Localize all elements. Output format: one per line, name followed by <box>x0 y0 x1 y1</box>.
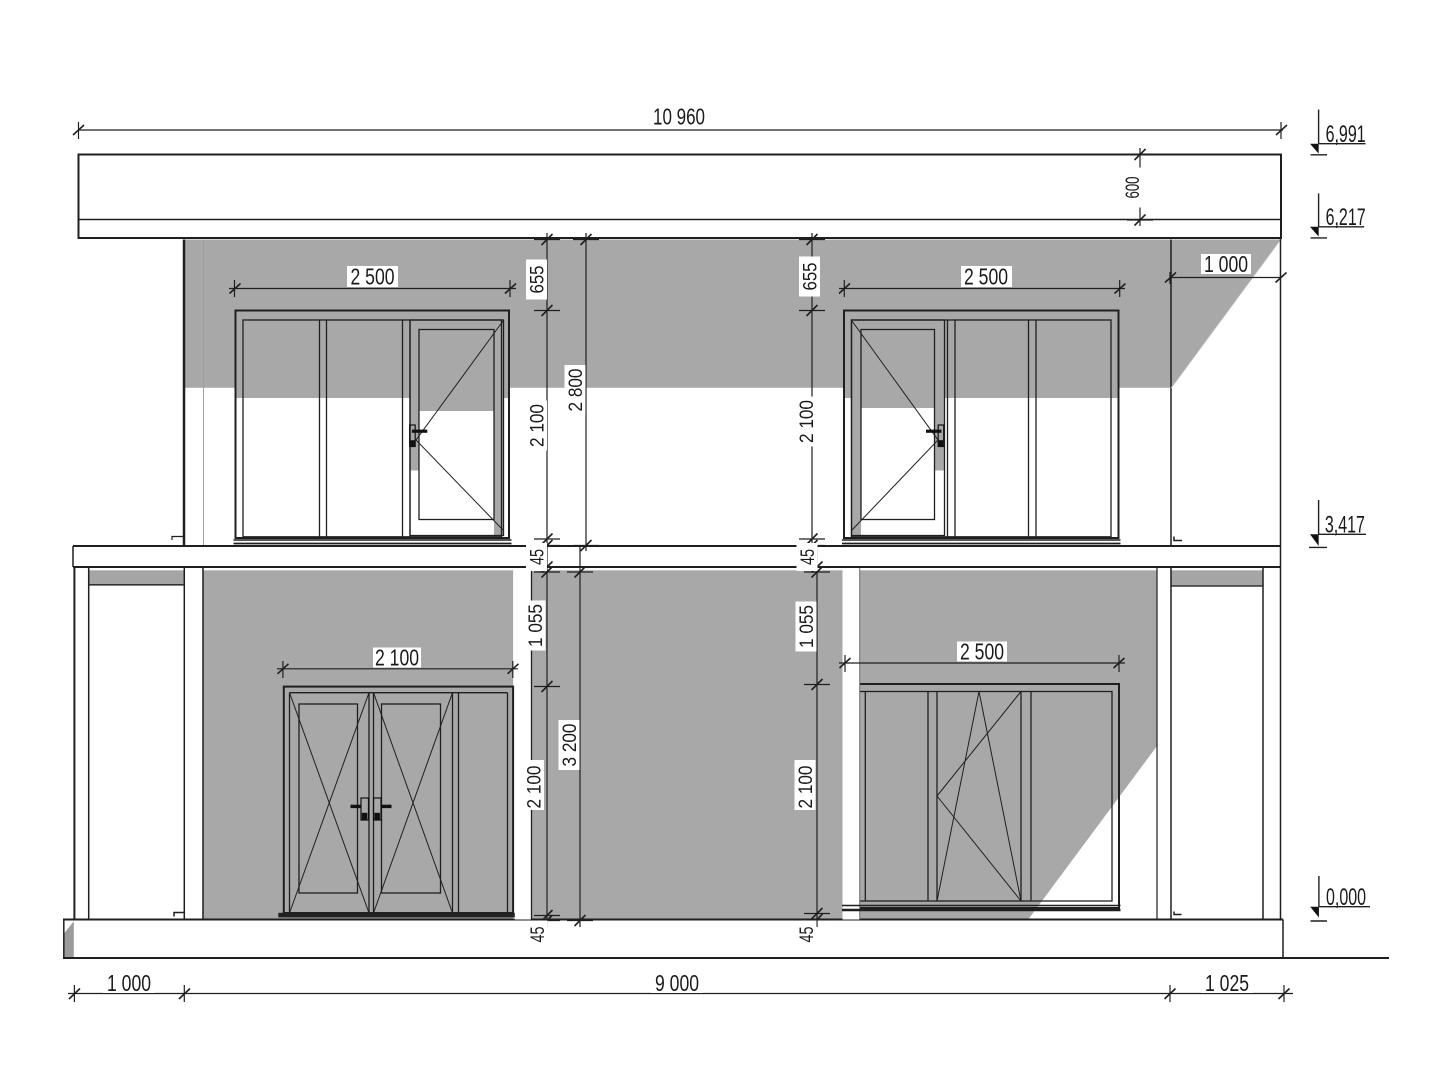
svg-text:9 000: 9 000 <box>655 970 699 996</box>
svg-text:655: 655 <box>800 262 822 290</box>
svg-text:6,991: 6,991 <box>1326 121 1366 148</box>
svg-text:2 100: 2 100 <box>796 400 818 443</box>
svg-text:1 055: 1 055 <box>525 604 547 647</box>
svg-text:2 100: 2 100 <box>524 765 546 808</box>
svg-text:655: 655 <box>527 265 549 293</box>
svg-text:2 100: 2 100 <box>375 645 419 671</box>
svg-text:1 055: 1 055 <box>796 605 818 648</box>
svg-text:45: 45 <box>527 926 549 942</box>
svg-text:10 960: 10 960 <box>653 104 705 130</box>
svg-text:1 025: 1 025 <box>1205 970 1249 996</box>
svg-text:2 500: 2 500 <box>964 264 1008 290</box>
svg-text:2 800: 2 800 <box>565 368 587 411</box>
svg-text:45: 45 <box>527 549 549 565</box>
svg-text:2 500: 2 500 <box>351 264 395 290</box>
svg-text:1 000: 1 000 <box>1204 251 1248 277</box>
svg-text:6,217: 6,217 <box>1326 204 1366 231</box>
svg-text:1 000: 1 000 <box>107 970 151 996</box>
svg-text:3 200: 3 200 <box>559 723 581 766</box>
svg-text:45: 45 <box>796 926 818 942</box>
svg-text:0,000: 0,000 <box>1326 884 1366 911</box>
svg-text:2 100: 2 100 <box>527 404 549 447</box>
svg-text:600: 600 <box>1122 176 1144 198</box>
svg-text:45: 45 <box>797 549 819 565</box>
svg-text:2 100: 2 100 <box>795 765 817 808</box>
svg-text:3,417: 3,417 <box>1325 511 1365 538</box>
svg-text:2 500: 2 500 <box>960 639 1004 665</box>
